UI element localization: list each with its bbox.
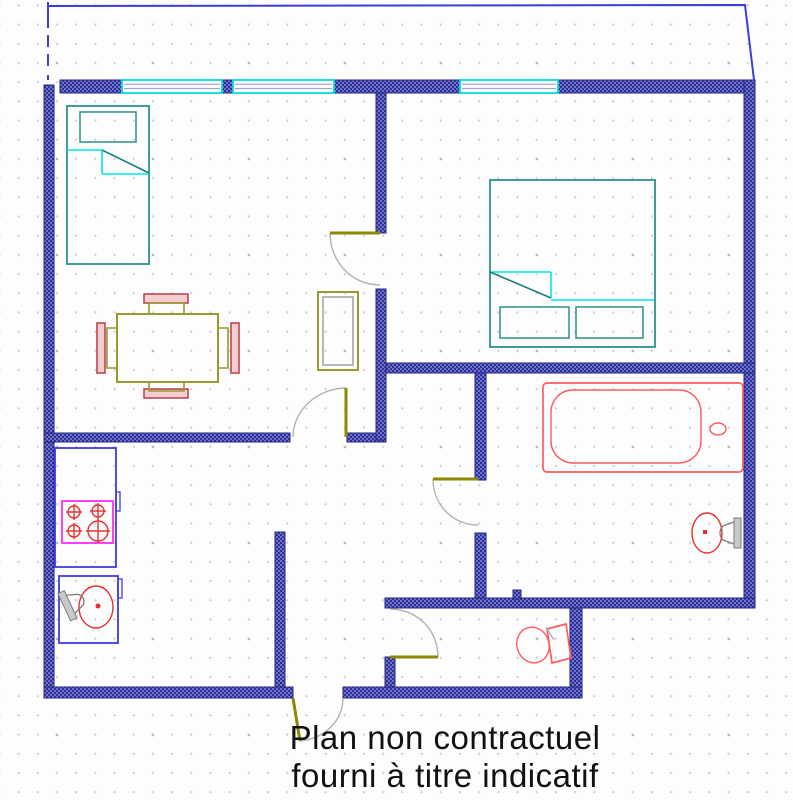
kitchen-counter (55, 448, 116, 567)
wc-door-swing-arc (390, 609, 438, 657)
wall-wc-left-stub (385, 657, 395, 687)
window-2 (233, 80, 334, 93)
wall-exterior-bottom-left (44, 687, 293, 698)
window-1 (122, 80, 222, 93)
balcony-layer (48, 2, 754, 80)
plan-caption: Plan non contractuel fourni à titre indi… (95, 719, 793, 795)
wall-exterior-right (744, 80, 755, 607)
wall-window-pier (222, 80, 233, 93)
wall-exterior-top-2 (334, 80, 460, 93)
balcony-outline-top (48, 5, 754, 80)
single-bed-pillow (80, 112, 136, 142)
furniture-layer (55, 106, 743, 667)
window-3 (460, 80, 558, 93)
double-bed-pillow (576, 307, 643, 338)
toilet-tank (547, 624, 571, 663)
bathtub-drain (710, 423, 726, 435)
chair-seat (107, 328, 117, 368)
wall-kitchen (275, 532, 285, 687)
wall-bedroom-bath (386, 363, 755, 373)
wall-exterior-bottom-right (343, 687, 582, 698)
wardrobe (318, 292, 358, 370)
sink-cabinet-handle (118, 579, 122, 598)
chair-back (144, 294, 188, 303)
floor-plan-svg (0, 0, 793, 800)
wall-bedroom-lower (376, 289, 386, 440)
plan-caption-line2: fourni à titre indicatif (95, 757, 793, 795)
wall-exterior-top-1 (60, 80, 122, 93)
bathtub-inner (551, 390, 701, 463)
double-bed-pillow (500, 307, 569, 338)
wardrobe-inner (323, 297, 353, 365)
washbasin-dot (703, 530, 707, 534)
wall-exterior-top-3 (558, 80, 755, 93)
wall-bath-left-upper (475, 373, 486, 480)
wall-bath-left-lower (475, 533, 486, 598)
dining-table (117, 314, 218, 382)
wall-wc-right (570, 608, 582, 698)
washbasin-faucet (734, 518, 741, 548)
chair-seat (149, 303, 184, 314)
chair-back (97, 323, 105, 373)
chair-seat (218, 328, 228, 368)
wall-living-hall-left (44, 433, 290, 442)
kitchen-sink-drain (96, 604, 101, 609)
bedroom-door-swing-arc (330, 233, 380, 285)
single-bed-sheet-fold (102, 150, 149, 173)
wall-exterior-left (44, 85, 54, 698)
bathtub (543, 383, 743, 472)
chair-back (231, 323, 239, 373)
double-bed-sheet-fold (490, 272, 551, 298)
wall-stub-small (513, 590, 521, 599)
double-bed (490, 180, 655, 347)
plan-caption-line1: Plan non contractuel (95, 719, 793, 757)
wall-exterior-south-upper (385, 598, 755, 608)
bathroom-door-swing-arc (433, 479, 478, 525)
kitchen-counter-handle (116, 492, 120, 511)
wall-bedroom-upper (376, 93, 386, 233)
floor-plan-stage: Plan non contractuel fourni à titre indi… (0, 0, 793, 800)
living-room-door-swing-arc (293, 388, 346, 437)
